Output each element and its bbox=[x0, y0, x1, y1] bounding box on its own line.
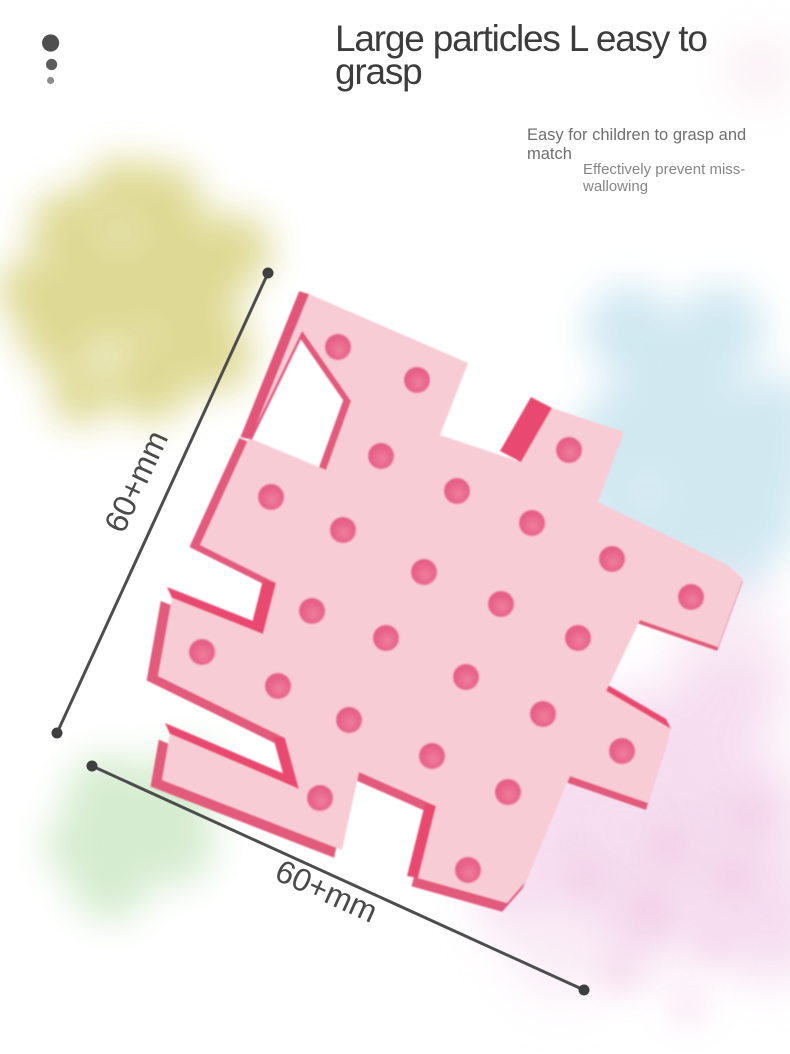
svg-text:60+mm: 60+mm bbox=[97, 425, 175, 538]
svg-text:60+mm: 60+mm bbox=[270, 852, 383, 929]
